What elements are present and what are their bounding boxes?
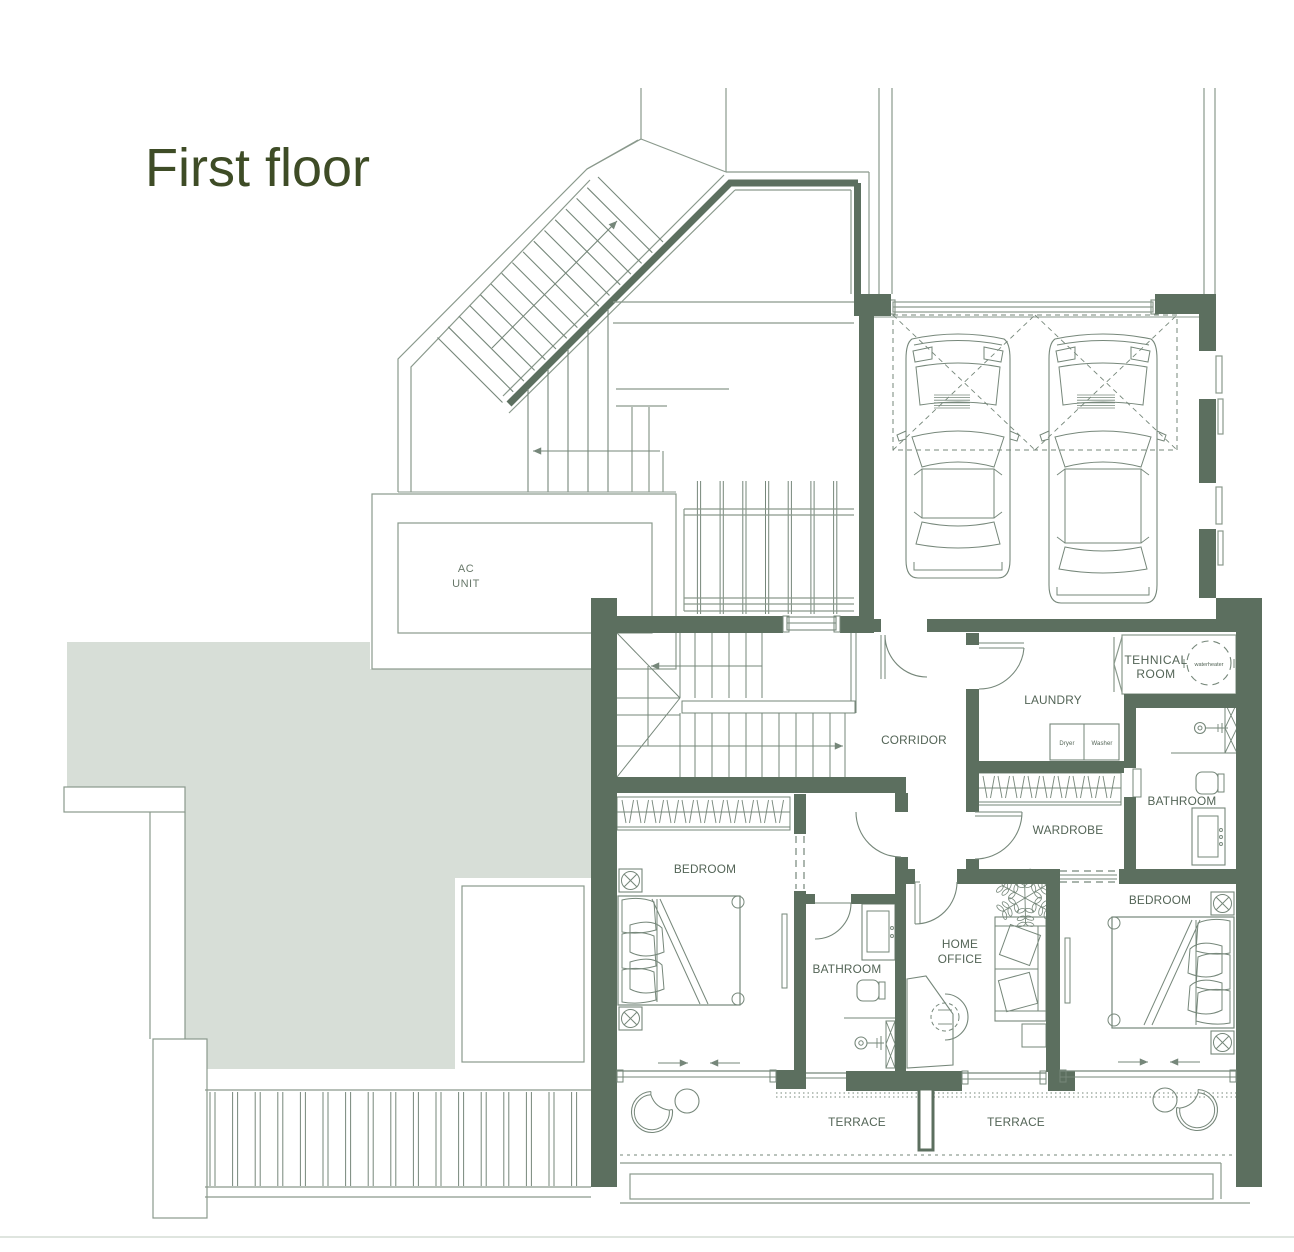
- svg-text:BEDROOM: BEDROOM: [674, 862, 736, 876]
- svg-text:waterheater: waterheater: [1193, 662, 1223, 668]
- svg-text:Washer: Washer: [1091, 741, 1112, 747]
- svg-text:WARDROBE: WARDROBE: [1033, 823, 1104, 837]
- svg-text:HOME: HOME: [942, 937, 978, 951]
- svg-text:TEHNICAL: TEHNICAL: [1124, 653, 1187, 667]
- svg-text:First floor: First floor: [145, 138, 370, 198]
- svg-text:UNIT: UNIT: [452, 578, 480, 590]
- svg-text:Dryer: Dryer: [1059, 741, 1074, 747]
- svg-text:TERRACE: TERRACE: [987, 1115, 1045, 1129]
- svg-text:ROOM: ROOM: [1136, 667, 1175, 681]
- svg-text:BATHROOM: BATHROOM: [1148, 794, 1217, 808]
- svg-text:CORRIDOR: CORRIDOR: [881, 733, 947, 747]
- svg-text:OFFICE: OFFICE: [938, 952, 982, 966]
- svg-text:BEDROOM: BEDROOM: [1129, 893, 1191, 907]
- svg-text:LAUNDRY: LAUNDRY: [1024, 693, 1082, 707]
- svg-text:TERRACE: TERRACE: [828, 1115, 886, 1129]
- svg-text:BATHROOM: BATHROOM: [813, 962, 882, 976]
- svg-text:AC: AC: [458, 563, 474, 575]
